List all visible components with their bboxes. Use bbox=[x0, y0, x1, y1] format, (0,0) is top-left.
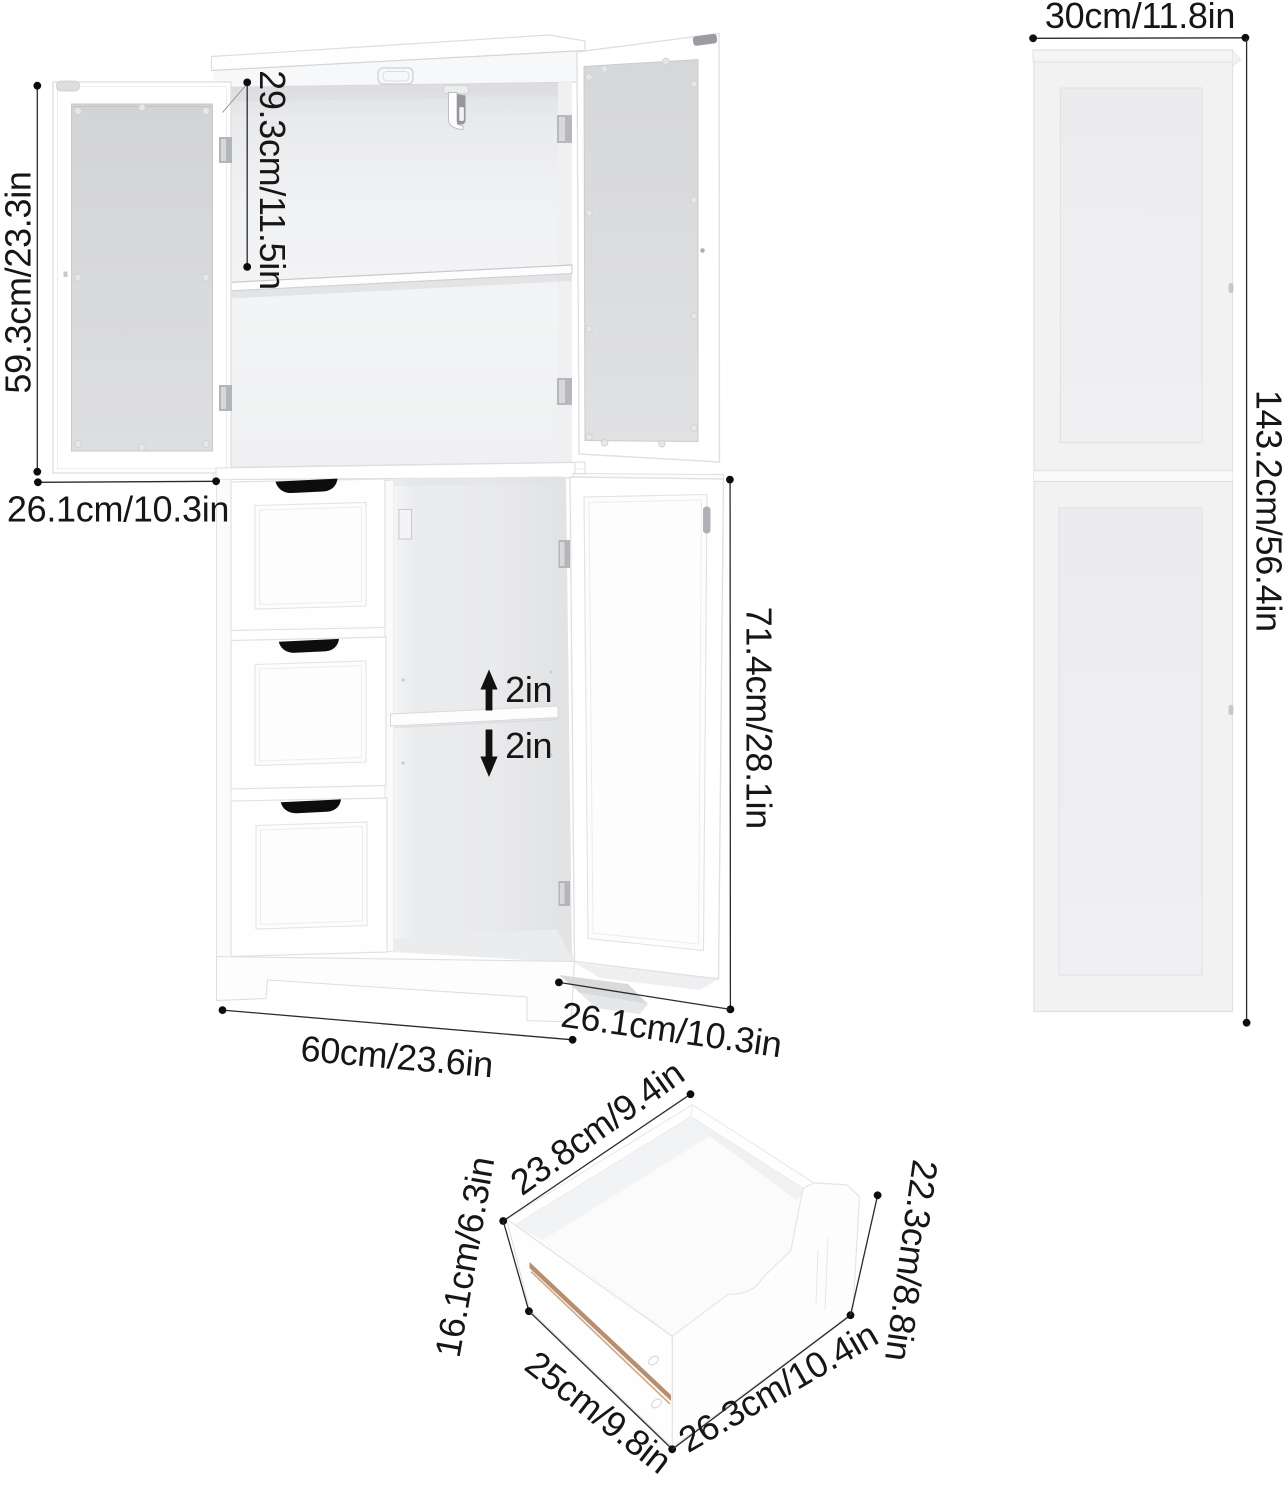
svg-text:71.4cm/28.1in: 71.4cm/28.1in bbox=[738, 607, 779, 829]
svg-text:2in: 2in bbox=[505, 725, 552, 766]
svg-text:26.1cm/10.3in: 26.1cm/10.3in bbox=[7, 489, 229, 530]
svg-text:30cm/11.8in: 30cm/11.8in bbox=[1045, 0, 1235, 36]
svg-text:143.2cm/56.4in: 143.2cm/56.4in bbox=[1248, 390, 1288, 632]
svg-text:2in: 2in bbox=[505, 669, 552, 710]
svg-text:59.3cm/23.3in: 59.3cm/23.3in bbox=[0, 171, 38, 393]
svg-text:29.3cm/11.5in: 29.3cm/11.5in bbox=[252, 70, 293, 290]
